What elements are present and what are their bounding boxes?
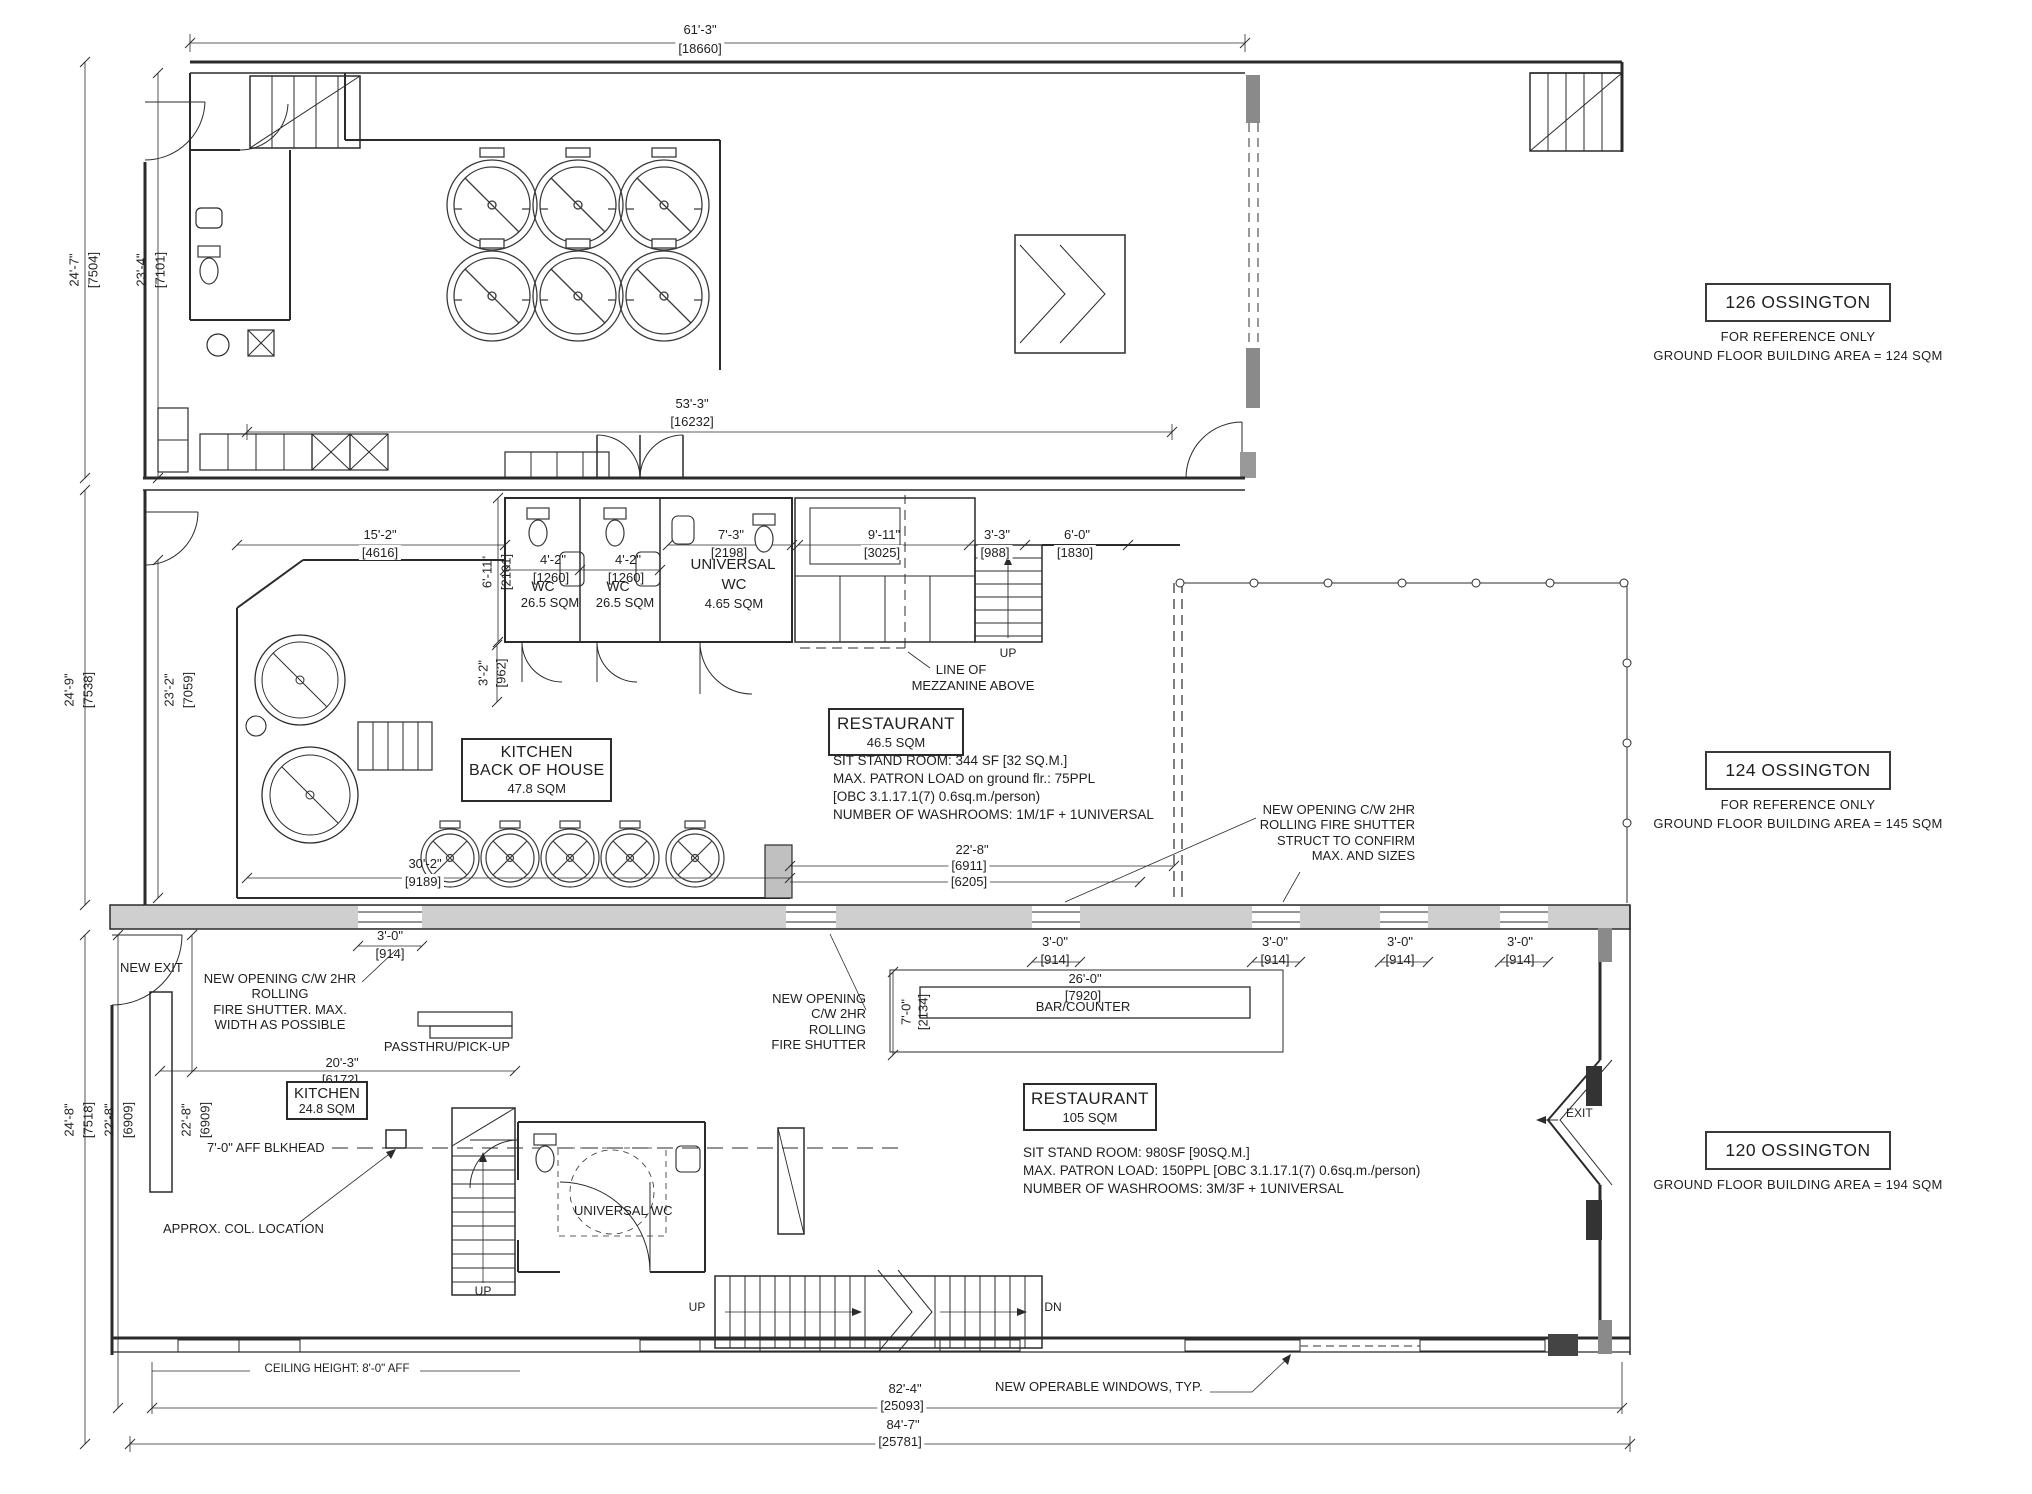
dim-3-0-1-ft: 3'-0" xyxy=(377,928,403,943)
room-wc-b-area: 26.5 SQM xyxy=(596,595,655,610)
dim-7-0-mm: [2134] xyxy=(915,994,930,1030)
title-124-area: GROUND FLOOR BUILDING AREA = 145 SQM xyxy=(1638,816,1958,831)
dim-15-2-mm: [4616] xyxy=(359,545,401,560)
room-restaurant-120-title: RESTAURANT xyxy=(1031,1089,1149,1109)
room-kitchen-boh-area: 47.8 SQM xyxy=(469,781,604,796)
dim-15-2-ft: 15'-2" xyxy=(363,527,396,542)
note-120-line1: SIT STAND ROOM: 980SF [90SQ.M.] xyxy=(1023,1144,1250,1162)
dim-3-2-mm: [962] xyxy=(493,659,508,688)
dim-24-9-mm: [7538] xyxy=(80,672,95,708)
room-restaurant-120: RESTAURANT 105 SQM xyxy=(1023,1083,1157,1131)
dim-4-2-a-ft: 4'-2" xyxy=(540,552,566,567)
room-restaurant-124: RESTAURANT 46.5 SQM xyxy=(828,708,964,756)
title-120-area: GROUND FLOOR BUILDING AREA = 194 SQM xyxy=(1638,1177,1958,1192)
note-shutter-bar-l1: NEW OPENING xyxy=(736,991,866,1006)
stair-dn-120: DN xyxy=(1044,1300,1061,1314)
dim-4-2-b-ft: 4'-2" xyxy=(615,552,641,567)
note-shutter-left-l4: WIDTH AS POSSIBLE xyxy=(196,1017,364,1032)
dim-53-3-ft: 53'-3" xyxy=(675,396,708,411)
title-block-124: 124 OSSINGTON FOR REFERENCE ONLY GROUND … xyxy=(1638,751,1958,831)
room-uwc-124-area: 4.65 SQM xyxy=(705,596,764,611)
dim-22-8-b-ft: 22'-8" xyxy=(178,1103,193,1136)
room-kitchen-boh: KITCHEN BACK OF HOUSE 47.8 SQM xyxy=(461,738,612,802)
note-new-exit: NEW EXIT xyxy=(120,960,183,975)
dim-3-0-3-ft: 3'-0" xyxy=(1262,934,1288,949)
dim-22-8-a-ft: 22'-8" xyxy=(101,1103,116,1136)
room-kitchen-120-title: KITCHEN xyxy=(294,1085,360,1102)
note-shutter-bar-l3: ROLLING xyxy=(736,1022,866,1037)
floor-plan-drawing xyxy=(0,0,2032,1494)
title-126-name: 126 OSSINGTON xyxy=(1705,283,1890,322)
stair-up-120b: UP xyxy=(689,1300,706,1314)
note-shutter-struct-l4: MAX. AND SIZES xyxy=(1240,848,1415,863)
dim-23-2-mm: [7059] xyxy=(180,672,195,708)
room-wc-b-title: WC xyxy=(606,578,629,595)
note-124-line2: MAX. PATRON LOAD on ground flr.: 75PPL xyxy=(833,770,1095,788)
dim-3-3-mm: [988] xyxy=(978,545,1013,560)
note-124-line1: SIT STAND ROOM: 344 SF [32 SQ.M.] xyxy=(833,752,1067,770)
note-approx-col: APPROX. COL. LOCATION xyxy=(163,1221,324,1236)
room-wc-a-area: 26.5 SQM xyxy=(521,595,580,610)
dim-26-0-ft: 26'-0" xyxy=(1068,971,1101,986)
room-uwc-120-title: UNIVERSAL WC xyxy=(574,1203,672,1218)
note-blkhead: 7'-0" AFF BLKHEAD xyxy=(207,1140,325,1155)
stair-up-120a: UP xyxy=(475,1284,492,1298)
title-124-name: 124 OSSINGTON xyxy=(1705,751,1890,790)
room-kitchen-boh-l2: BACK OF HOUSE xyxy=(469,762,604,780)
dim-6-11-ft: 6'-11" xyxy=(479,556,494,588)
bar-counter-label: BAR/COUNTER xyxy=(1036,999,1131,1014)
dim-3-0-4-mm: [914] xyxy=(1386,952,1415,967)
note-shutter-bar-l4: FIRE SHUTTER xyxy=(736,1037,866,1052)
title-block-120: 120 OSSINGTON GROUND FLOOR BUILDING AREA… xyxy=(1638,1131,1958,1192)
stair-up-124: UP xyxy=(1000,646,1017,660)
dim-3-0-3-mm: [914] xyxy=(1261,952,1290,967)
dim-6-0-ft: 6'-0" xyxy=(1064,527,1090,542)
dim-30-2-mm: [9189] xyxy=(402,874,444,889)
dim-22-8-c-mm: [6911] xyxy=(948,858,989,873)
dim-23-4-ft: 23'-4" xyxy=(133,253,148,286)
dim-7-3-ft: 7'-3" xyxy=(718,527,744,542)
dim-24-7-mm: [7504] xyxy=(85,252,100,288)
note-mezzanine-l2: MEZZANINE ABOVE xyxy=(912,678,1035,693)
dim-3-0-5-ft: 3'-0" xyxy=(1507,934,1533,949)
note-120-line3: NUMBER OF WASHROOMS: 3M/3F + 1UNIVERSAL xyxy=(1023,1180,1344,1198)
note-passthru: PASSTHRU/PICK-UP xyxy=(384,1039,510,1054)
dim-3-0-2-mm: [914] xyxy=(1041,952,1070,967)
exit-label: EXIT xyxy=(1566,1106,1593,1120)
room-uwc-124-l2: WC xyxy=(722,576,747,594)
floor-plan-sheet: 61'-3" [18660] 53'-3" [16232] 24'-7" [75… xyxy=(0,0,2032,1494)
dim-30-2-ft: 30'-2" xyxy=(408,856,441,871)
note-mezzanine-l1: LINE OF xyxy=(936,662,987,677)
dim-overall-top-mm: [18660] xyxy=(675,41,724,56)
room-wc-a-title: WC xyxy=(531,578,554,595)
room-kitchen-120-area: 24.8 SQM xyxy=(294,1102,360,1116)
note-shutter-left-l3: FIRE SHUTTER. MAX. xyxy=(196,1002,364,1017)
dim-9-11-ft: 9'-11" xyxy=(868,527,900,542)
dim-3-3-ft: 3'-3" xyxy=(984,527,1010,542)
dim-9-11-mm: [3025] xyxy=(861,545,903,560)
dim-6205-mm: [6205] xyxy=(948,874,990,889)
room-restaurant-124-area: 46.5 SQM xyxy=(836,735,956,750)
dim-22-8-a-mm: [6909] xyxy=(120,1102,135,1138)
title-block-126: 126 OSSINGTON FOR REFERENCE ONLY GROUND … xyxy=(1638,283,1958,363)
dim-24-9-ft: 24'-9" xyxy=(61,673,76,706)
room-restaurant-124-title: RESTAURANT xyxy=(836,714,956,734)
room-kitchen-120: KITCHEN 24.8 SQM xyxy=(286,1081,368,1120)
note-shutter-bar-l2: C/W 2HR xyxy=(736,1006,866,1021)
note-shutter-left-l2: ROLLING xyxy=(196,986,364,1001)
note-shutter-struct-l1: NEW OPENING C/W 2HR xyxy=(1240,802,1415,817)
dim-3-0-2-ft: 3'-0" xyxy=(1042,934,1068,949)
note-120-line2: MAX. PATRON LOAD: 150PPL [OBC 3.1.17.1(7… xyxy=(1023,1162,1420,1180)
dim-overall-top-ft: 61'-3" xyxy=(683,22,716,37)
ceiling-height-note: CEILING HEIGHT: 8'-0" AFF xyxy=(265,1363,410,1377)
dim-6-0-mm: [1830] xyxy=(1054,545,1096,560)
title-120-name: 120 OSSINGTON xyxy=(1705,1131,1890,1170)
dim-82-4-ft: 82'-4" xyxy=(888,1381,921,1396)
dim-53-3-mm: [16232] xyxy=(667,414,716,429)
dim-23-2-ft: 23'-2" xyxy=(161,673,176,706)
title-126-area: GROUND FLOOR BUILDING AREA = 124 SQM xyxy=(1638,348,1958,363)
note-shutter-struct: NEW OPENING C/W 2HR ROLLING FIRE SHUTTER… xyxy=(1240,802,1415,863)
note-shutter-struct-l2: ROLLING FIRE SHUTTER xyxy=(1240,817,1415,832)
dim-20-3-ft: 20'-3" xyxy=(325,1055,358,1070)
note-shutter-left-l1: NEW OPENING C/W 2HR xyxy=(196,971,364,986)
note-operable-windows: NEW OPERABLE WINDOWS, TYP. xyxy=(995,1379,1203,1394)
dim-22-8-c-ft: 22'-8" xyxy=(955,842,988,857)
dim-24-8-ft: 24'-8" xyxy=(61,1103,76,1136)
note-shutter-bar: NEW OPENING C/W 2HR ROLLING FIRE SHUTTER xyxy=(736,991,866,1052)
note-124-line4: NUMBER OF WASHROOMS: 1M/1F + 1UNIVERSAL xyxy=(833,806,1154,824)
room-kitchen-boh-l1: KITCHEN xyxy=(469,744,604,762)
dim-7-0-ft: 7'-0" xyxy=(898,999,913,1025)
dim-3-0-1-mm: [914] xyxy=(376,946,405,961)
room-restaurant-120-area: 105 SQM xyxy=(1031,1110,1149,1125)
dim-22-8-b-mm: [6909] xyxy=(197,1102,212,1138)
dim-24-7-ft: 24'-7" xyxy=(66,253,81,286)
dim-84-7-ft: 84'-7" xyxy=(886,1417,919,1432)
dim-82-4-mm: [25093] xyxy=(877,1398,926,1413)
title-124-ref: FOR REFERENCE ONLY xyxy=(1638,797,1958,812)
note-124-line3: [OBC 3.1.17.1(7) 0.6sq.m./person) xyxy=(833,788,1040,806)
dim-3-0-4-ft: 3'-0" xyxy=(1387,934,1413,949)
dim-6-11-mm: [2101] xyxy=(498,554,513,590)
dim-3-0-5-mm: [914] xyxy=(1506,952,1535,967)
dim-23-4-mm: [7101] xyxy=(152,252,167,288)
note-shutter-struct-l3: STRUCT TO CONFIRM xyxy=(1240,833,1415,848)
dim-84-7-mm: [25781] xyxy=(875,1434,924,1449)
dim-3-2-ft: 3'-2" xyxy=(475,660,490,686)
room-uwc-124-l1: UNIVERSAL xyxy=(690,556,775,574)
note-shutter-left: NEW OPENING C/W 2HR ROLLING FIRE SHUTTER… xyxy=(196,971,364,1032)
title-126-ref: FOR REFERENCE ONLY xyxy=(1638,329,1958,344)
dim-24-8-mm: [7518] xyxy=(80,1102,95,1138)
